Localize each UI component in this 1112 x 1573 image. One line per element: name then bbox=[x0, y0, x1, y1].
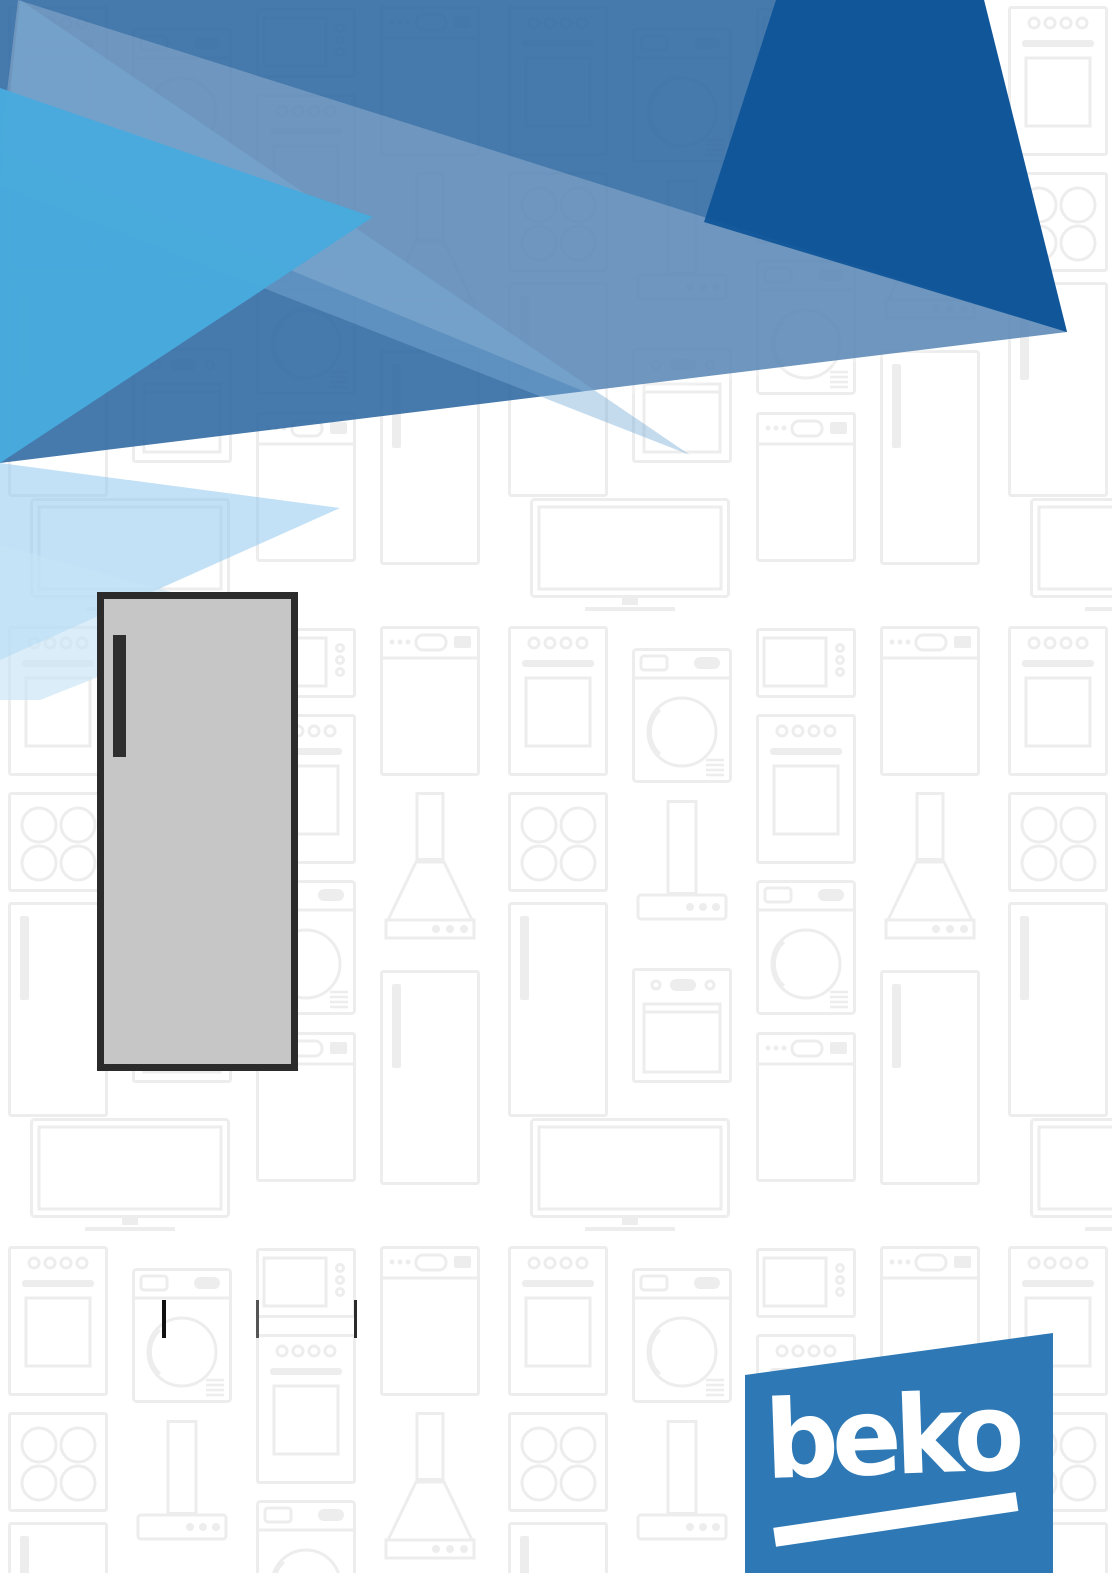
divider-mark-1 bbox=[162, 1300, 166, 1338]
freezer-illustration bbox=[97, 592, 298, 1071]
freezer-door-handle bbox=[113, 635, 126, 757]
divider-mark-2 bbox=[256, 1300, 259, 1338]
beko-logo-wordmark: beko bbox=[763, 1379, 1019, 1496]
manual-cover-page: beko bbox=[0, 0, 1112, 1573]
beko-logo: beko bbox=[745, 1333, 1053, 1573]
divider-mark-3 bbox=[354, 1300, 357, 1338]
